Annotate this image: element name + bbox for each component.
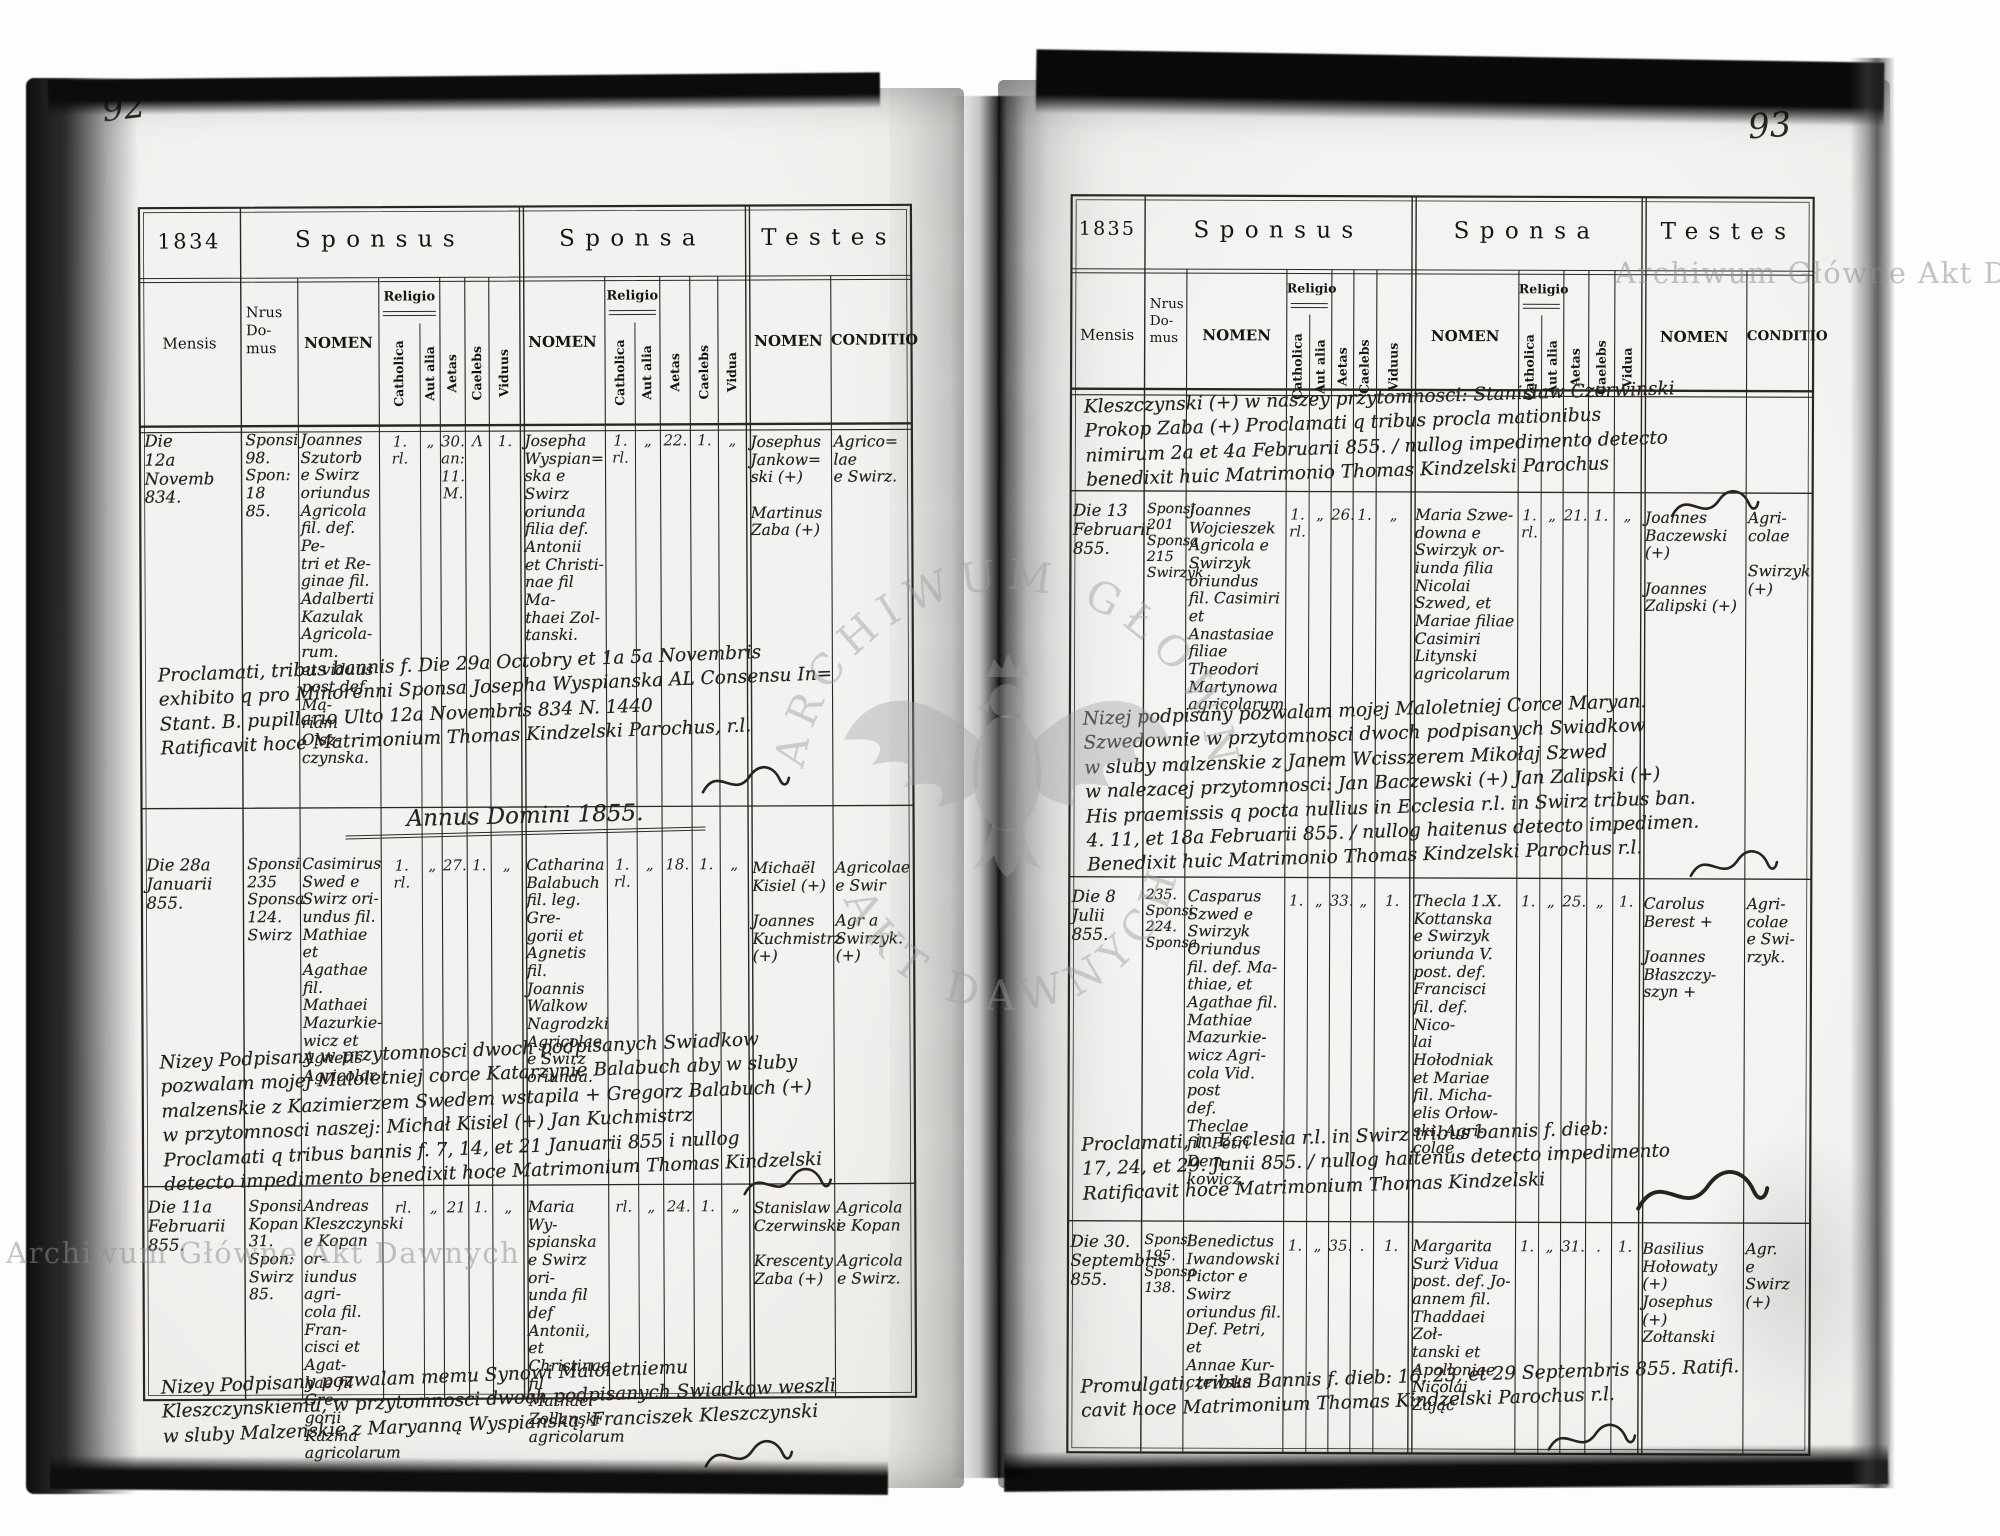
entry-witnesses: Carolus Berest + Joannes Błaszczy- szyn … <box>1643 896 1743 1002</box>
flag-caelebs: „ <box>1587 894 1613 911</box>
book-bottom-edge-left <box>50 1455 888 1495</box>
col-conditio-testes: CONDITIO <box>831 331 913 349</box>
col-aut-alia-sponsus: Aut alia <box>422 325 438 421</box>
col-nomen-sponsus: NOMEN <box>298 334 379 353</box>
flag-aut-alia: „ <box>424 1199 444 1216</box>
entry-witnesses: Stanislaw Czerwinski Krescenty Zaba (+) <box>754 1200 834 1289</box>
entry-groom-flags: 1. rl.„27.1.„ <box>381 857 522 892</box>
flag-viduus: 1. <box>1373 1238 1408 1255</box>
signature-flourish-icon <box>700 760 792 804</box>
flag-catholica: 1. rl. <box>379 433 420 468</box>
entry-bride-flags: 1. rl.„22.1.„ <box>605 432 746 467</box>
archive-watermark-bottom: Archiwum Główne Akt Dawnych <box>6 1236 520 1270</box>
entry-groom-name: Joannes Wojcieszek Agricola e Swirzyk or… <box>1188 502 1284 714</box>
flag-aetas: 21 <box>444 1199 469 1216</box>
flag-catholica: 1. <box>1285 892 1308 909</box>
entry-house-number: Sponsi 235 Sponsa 124. Swirz <box>247 856 297 944</box>
flag-caelebs: 1. <box>469 1199 493 1216</box>
entry-bride-flags: 1. rl.„21.1.„ <box>1518 507 1641 542</box>
flag-vidua: „ <box>720 856 748 873</box>
entry-witnesses: Michaël Kisiel (+) Joannes Kuchmistrz (+… <box>752 860 832 966</box>
entry-date: Die 13 Februarii 855. <box>1073 502 1143 559</box>
flag-aut-alia: „ <box>639 1198 664 1215</box>
col-nrus-domus: Nrus Do- mus <box>1150 296 1188 347</box>
entry-house-number: Sponsi 195. Sponsa 138. <box>1144 1233 1182 1297</box>
flag-vidua: „ <box>1614 508 1641 525</box>
flag-caelebs: Λ <box>465 433 489 450</box>
col-religio-sponsa: Religio <box>605 288 660 304</box>
entry-bride-flags: rl.„24.1.„ <box>609 1198 750 1216</box>
flag-catholica: 1. rl. <box>607 857 637 892</box>
flag-catholica: 1. <box>1283 1237 1306 1254</box>
flag-caelebs: 1. <box>1588 508 1614 525</box>
col-aetas-sponsa: Aetas <box>667 324 683 420</box>
flag-aut-alia: „ <box>635 432 660 449</box>
entry-groom-flags: rl.„211.„ <box>383 1199 524 1217</box>
entry-conditio: Agricolae e Swir Agr a Swirzyk. (+) <box>835 859 913 965</box>
col-mensis: Mensis <box>138 334 241 353</box>
entry-house-number: Sponsi 98. Spon: 18 85. <box>245 432 295 520</box>
book-top-edge-right <box>1036 49 1885 126</box>
flag-vidua: „ <box>722 1198 750 1215</box>
flag-vidua: „ <box>718 432 746 449</box>
flag-aetas: 21. <box>1563 507 1588 524</box>
flag-aetas: 31. <box>1560 1238 1585 1255</box>
flag-caelebs: „ <box>1352 893 1375 910</box>
col-religio-sponsus: Religio <box>1287 280 1332 296</box>
flag-catholica: 1. rl. <box>1286 506 1309 541</box>
entry-bride-name: Maria Szwe- downa e Swirzyk or- iunda fi… <box>1414 507 1515 684</box>
flag-aetas: 33. <box>1330 893 1352 910</box>
col-nomen-sponsa: NOMEN <box>520 333 605 352</box>
col-nomen-sponsa: NOMEN <box>1412 327 1519 346</box>
flag-caelebs: 1. <box>694 1198 722 1215</box>
entry-house-number: Sponsi 201 Sponsa 215 Swirzyk <box>1147 502 1185 582</box>
col-catholica-sponsus: Catholica <box>391 326 407 422</box>
entry-bride-flags: 1.„25.„1. <box>1517 893 1640 911</box>
flag-catholica: 1. <box>1517 893 1540 910</box>
col-mensis: Mensis <box>1070 326 1145 345</box>
year-label: 1835 <box>1070 218 1145 242</box>
flag-caelebs: . <box>1350 1238 1373 1255</box>
col-aut-alia-sponsa: Aut alia <box>639 324 655 420</box>
flag-viduus: „ <box>1376 507 1411 524</box>
book-scan: 92 93 1834 Sponsus Sponsa Testes Mensis … <box>0 0 2000 1536</box>
flag-aut-alia: „ <box>1541 507 1563 524</box>
entry-groom-flags: 1.„33.„1. <box>1285 892 1410 910</box>
col-viduus-sponsus: Viduus <box>496 325 512 421</box>
book-top-edge-left <box>48 72 880 115</box>
flag-aut-alia: „ <box>422 857 442 874</box>
marriage-register-table-1834: 1834 Sponsus Sponsa Testes Mensis Nrus D… <box>137 203 917 1401</box>
col-caelebs-sponsus: Caelebs <box>469 325 485 421</box>
section-sponsus: Sponsus <box>240 225 519 255</box>
flag-catholica: rl. <box>383 1199 424 1216</box>
flag-aetas: 18. <box>662 856 692 873</box>
flag-aetas: 35. <box>1328 1238 1350 1255</box>
col-nomen-testes: NOMEN <box>746 332 831 351</box>
entry-groom-flags: 1. rl.„26.1.„ <box>1286 506 1411 541</box>
entry-bride-flags: 1. rl.„18.1.„ <box>607 856 748 891</box>
flag-aetas: 24. <box>664 1198 694 1215</box>
book-bottom-edge-right <box>1004 1444 1888 1492</box>
flag-viduus: 1. <box>1375 893 1410 910</box>
entry-bride-name: Josepha Wyspian= ska e Swirz oriunda fil… <box>524 433 605 645</box>
flag-aut-alia: „ <box>420 433 440 450</box>
flag-viduus: 1. <box>489 433 520 450</box>
flag-caelebs: 1. <box>467 857 491 874</box>
signature-flourish-icon <box>1688 844 1780 888</box>
entry-conditio: Agrico= lae e Swirz. <box>833 433 911 486</box>
entry-date: Die 28a Januarii 855. <box>146 856 238 913</box>
flag-aut-alia: „ <box>1540 893 1562 910</box>
flag-aut-alia: „ <box>1306 1238 1328 1255</box>
entry-witnesses: Joannes Baczewski (+) Joannes Zalipski (… <box>1645 510 1745 616</box>
section-sponsa: Sponsa <box>519 224 745 254</box>
flag-aetas: 26. <box>1331 507 1353 524</box>
col-vidua-sponsa: Vidua <box>724 324 740 420</box>
col-nrus-domus: Nrus Do- mus <box>246 304 296 359</box>
flag-vidua: 1. <box>1613 894 1640 911</box>
entry-date: Die 8 Julii 855. <box>1072 888 1142 945</box>
entry-groom-name: Benedictus Iwandowski Pictor e Swirz ori… <box>1186 1233 1282 1392</box>
flag-catholica: rl. <box>609 1199 639 1216</box>
entry-conditio: Agri- colae e Swi- rzyk. <box>1747 896 1811 967</box>
book-gutter-shadow <box>950 96 1048 1478</box>
entry-witnesses: Josephus Jankow= ski (+) Martinus Zaba (… <box>750 434 830 540</box>
flag-viduus: „ <box>493 1199 524 1216</box>
flag-catholica: 1. rl. <box>1518 507 1541 542</box>
col-nomen-sponsus: NOMEN <box>1187 326 1287 345</box>
flag-caelebs: 1. <box>690 432 718 449</box>
flag-viduus: „ <box>491 857 522 874</box>
col-religio-sponsus: Religio <box>379 289 440 306</box>
col-nomen-testes: NOMEN <box>1642 328 1747 347</box>
flag-aetas: 22. <box>660 432 690 449</box>
entry-groom-flags: 1. rl.„30. an: 11. M.Λ1. <box>379 433 520 503</box>
flag-caelebs: 1. <box>1353 507 1376 524</box>
col-caelebs-sponsa: Caelebs <box>696 324 712 420</box>
flag-caelebs: 1. <box>692 856 720 873</box>
flag-aut-alia: „ <box>1308 893 1330 910</box>
entry-bride-flags: 1.„31..1. <box>1515 1238 1638 1256</box>
flag-catholica: 1. <box>1515 1238 1538 1255</box>
section-sponsus: Sponsus <box>1145 216 1412 246</box>
col-catholica-sponsa: Catholica <box>612 325 628 421</box>
col-religio-sponsa: Religio <box>1519 281 1564 297</box>
flag-aut-alia: „ <box>1309 507 1331 524</box>
section-testes: Testes <box>1642 218 1815 247</box>
flag-aetas: 25. <box>1562 893 1587 910</box>
col-conditio-testes: CONDITIO <box>1747 328 1815 345</box>
flag-catholica: 1. rl. <box>381 857 422 892</box>
flag-aut-alia: „ <box>637 856 662 873</box>
entry-conditio: Agricola e Kopan Agricola e Swirz. <box>837 1199 915 1288</box>
flag-vidua: 1. <box>1611 1239 1638 1256</box>
scan-smudge <box>1700 1130 1890 1420</box>
col-aetas-sponsus: Aetas <box>444 325 460 421</box>
flag-aetas: 30. an: 11. M. <box>440 433 465 502</box>
entry-date: Die 12a Novemb 834. <box>144 432 236 508</box>
entry-conditio: Agri- colae Swirzyk (+) <box>1748 510 1812 599</box>
flag-aetas: 27. <box>442 857 467 874</box>
flag-caelebs: . <box>1585 1239 1611 1256</box>
flag-catholica: 1. rl. <box>605 433 635 468</box>
entry-groom-flags: 1.„35..1. <box>1283 1237 1408 1255</box>
archive-watermark-top: Archiwum Główne Akt Dawnych <box>1615 256 2000 290</box>
flag-aut-alia: „ <box>1538 1238 1560 1255</box>
section-testes: Testes <box>745 223 912 252</box>
section-sponsa: Sponsa <box>1412 217 1642 247</box>
entry-date: Die 30. Septembris 855. <box>1070 1233 1140 1290</box>
book-spine <box>26 78 138 1494</box>
entry-bride-name: Thecla 1.X. Kottanska e Swirzyk oriunda … <box>1413 893 1514 1158</box>
year-label: 1834 <box>137 228 240 255</box>
entry-house-number: 235. Sponsi 224. Sponsa <box>1146 888 1184 952</box>
